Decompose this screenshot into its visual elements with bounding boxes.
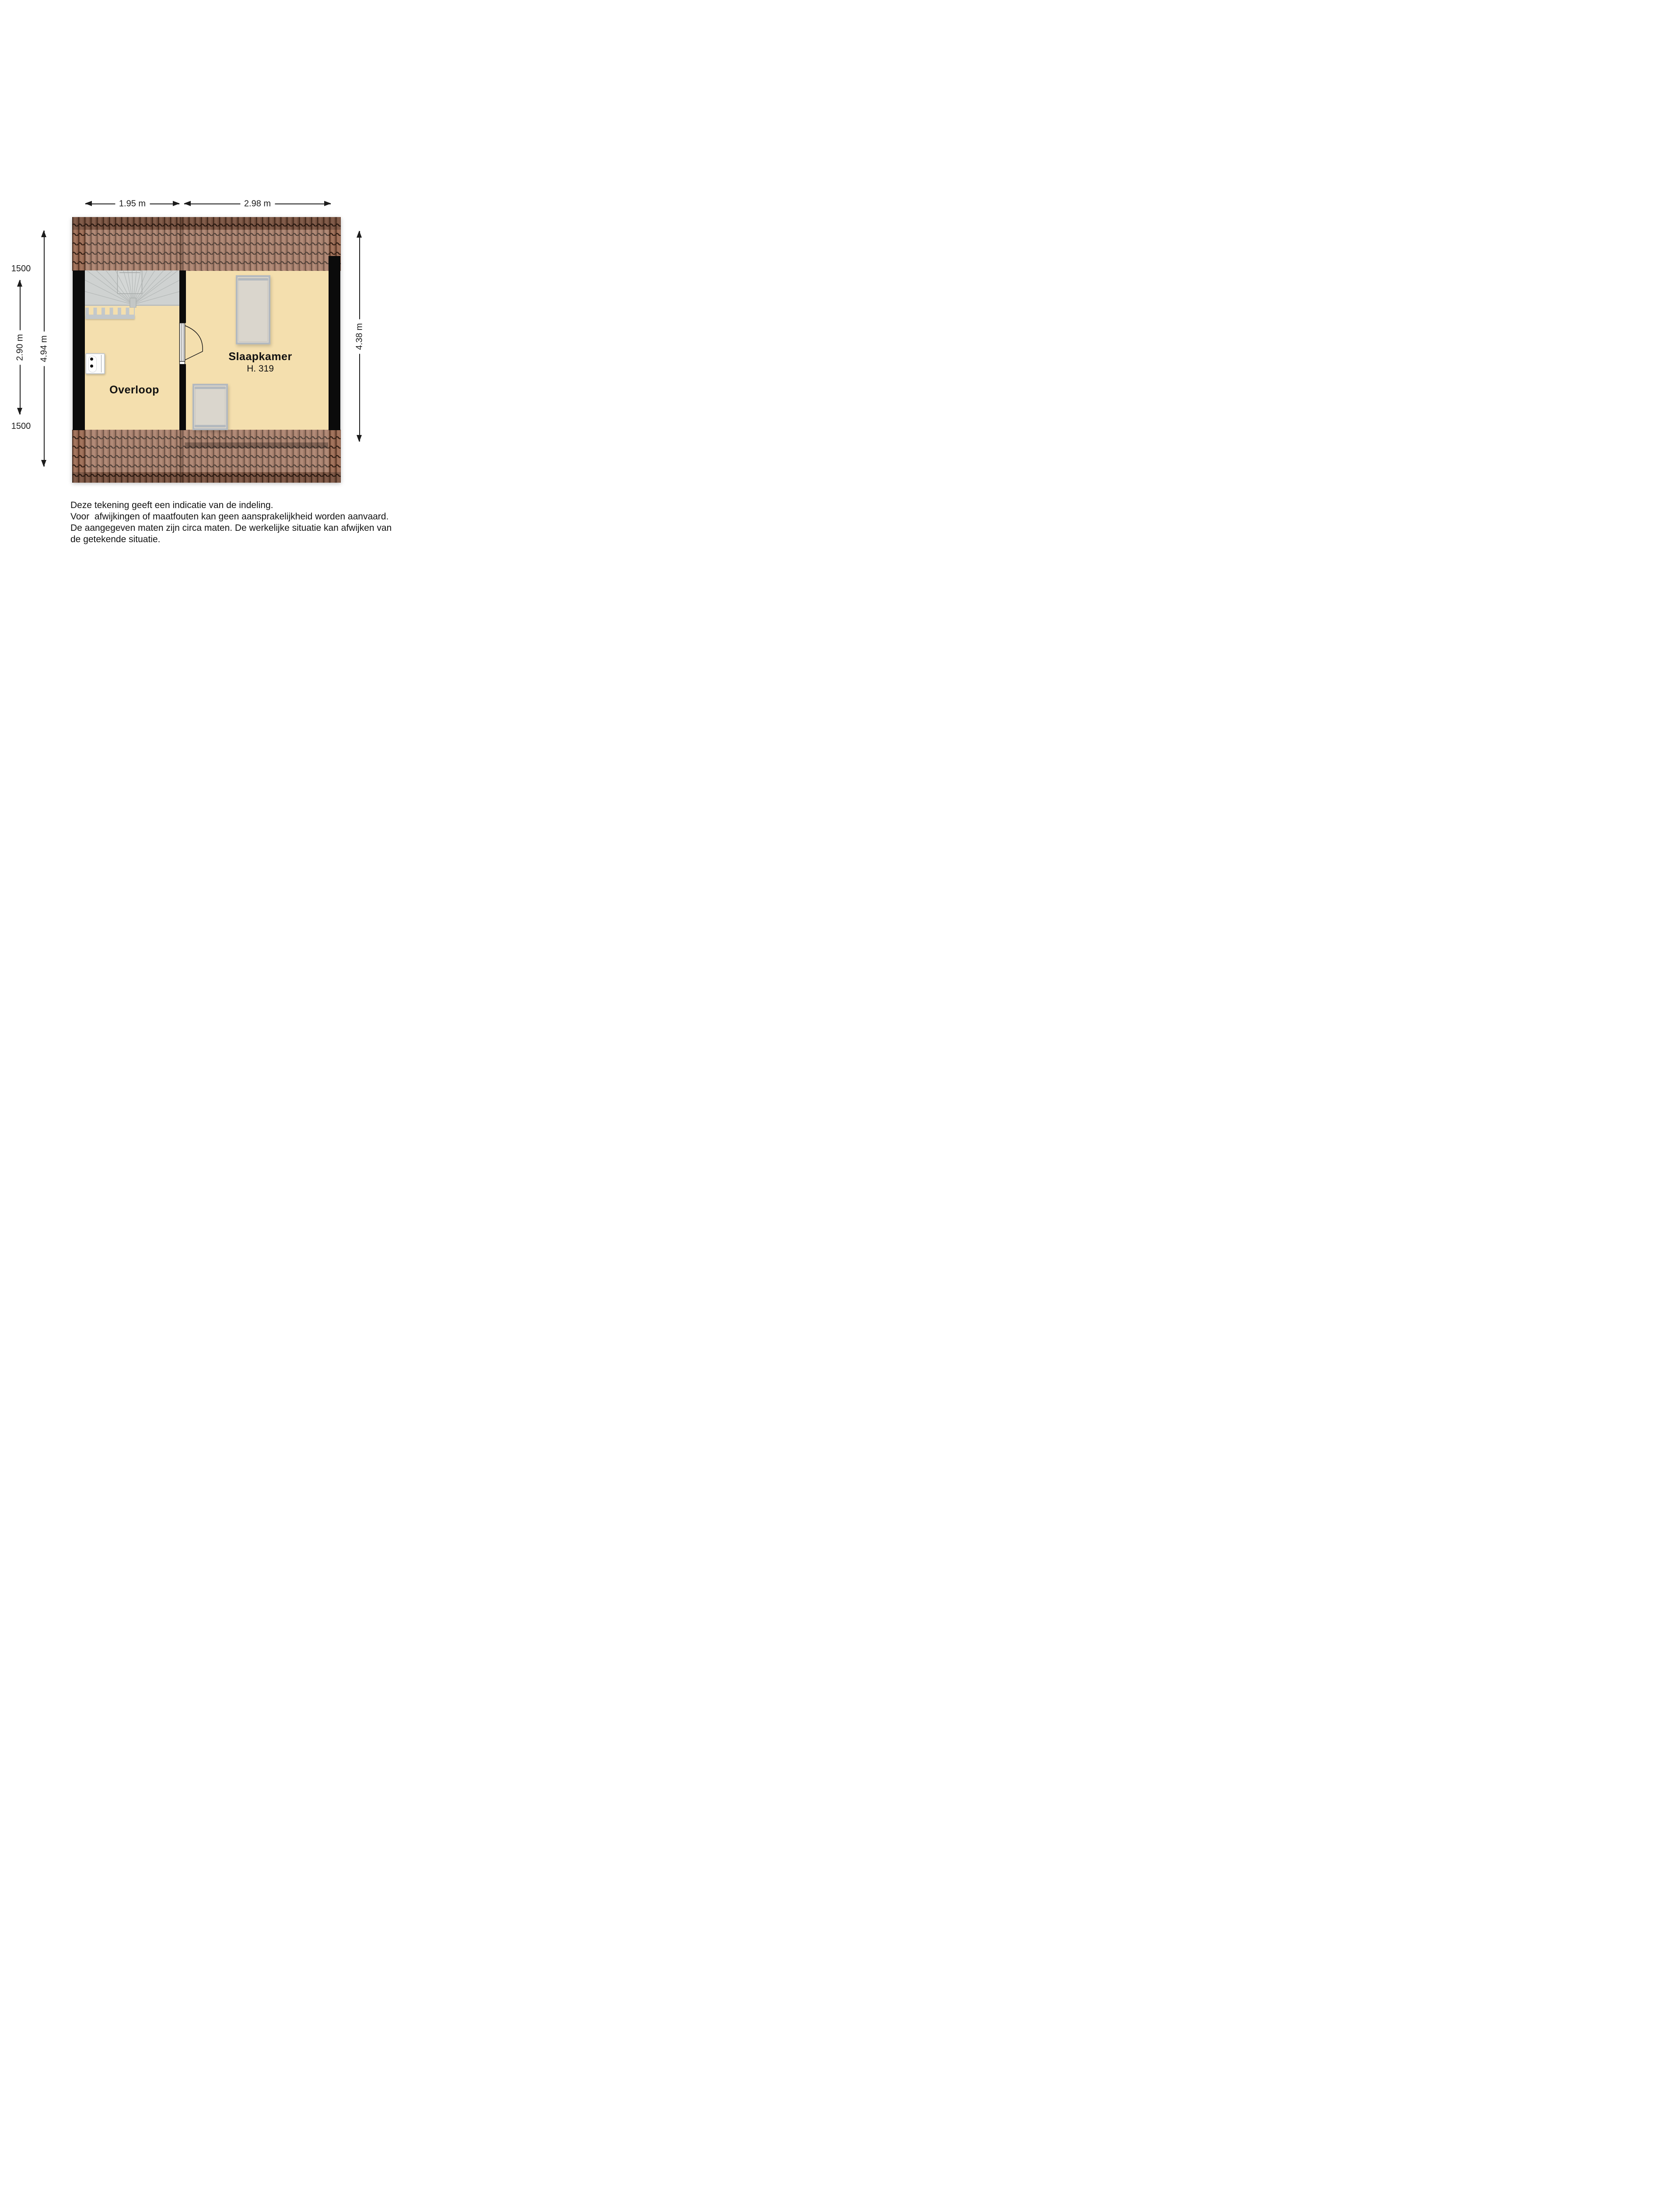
- bottom-roof-band: [72, 430, 341, 483]
- left-wall: [73, 270, 85, 430]
- door-jamb: [180, 361, 185, 365]
- roof-eave-shade: [72, 472, 341, 483]
- dim-label: 2.90 m: [15, 330, 25, 365]
- roof-ledge-shade: [185, 442, 329, 448]
- dim-label: 2.98 m: [240, 199, 275, 209]
- disclaimer-line: De aangegeven maten zijn circa maten. De…: [70, 522, 412, 534]
- arrow-down-icon: [17, 408, 22, 415]
- knee-wall-value-top: 1500: [3, 264, 38, 274]
- disclaimer-line: Deze tekening geeft een indicatie van de…: [70, 500, 412, 511]
- room-name: Slaapkamer: [206, 351, 315, 363]
- room-label-slaapkamer: Slaapkamer H. 319: [206, 351, 315, 374]
- roof-window-bar: [195, 387, 226, 389]
- stairs: [85, 270, 180, 308]
- roof-ridge-shade: [72, 217, 341, 230]
- knee-wall-value-bottom: 1500: [3, 421, 38, 431]
- divider-seam: [180, 430, 182, 483]
- dim-label: 1.95 m: [115, 199, 150, 209]
- arrow-left-icon: [184, 201, 191, 206]
- boiler-knob-icon: [90, 365, 93, 368]
- newel-post: [130, 298, 136, 308]
- arrow-up-icon: [17, 280, 22, 287]
- room-ceiling-height: H. 319: [206, 364, 315, 374]
- arrow-right-icon: [324, 201, 331, 206]
- disclaimer-text: Deze tekening geeft een indicatie van de…: [70, 500, 412, 545]
- top-roof-band: [72, 217, 341, 271]
- inner-roof-highlight: [85, 430, 329, 472]
- roof-window-bottom: [192, 384, 228, 430]
- disclaimer-line: de getekende situatie.: [70, 534, 412, 545]
- room-label-overloop: Overloop: [101, 384, 167, 396]
- inner-roof-highlight: [85, 230, 329, 271]
- floorplan-canvas: 1.95 m 2.98 m 1500 2.90 m 1500 4.94 m 4.…: [0, 0, 420, 747]
- divider-seam: [180, 217, 182, 271]
- dim-label: 4.38 m: [355, 319, 365, 354]
- door-swing-arc: [183, 326, 203, 361]
- arrow-up-icon: [357, 231, 362, 238]
- roof-window-bar: [195, 425, 226, 427]
- divider-wall-lower: [179, 364, 186, 430]
- roof-window-bar: [238, 278, 268, 281]
- arrow-down-icon: [357, 435, 362, 442]
- arrow-up-icon: [41, 230, 46, 237]
- boiler-door-seam: [101, 355, 102, 372]
- door: [177, 322, 208, 365]
- door-leaf: [180, 323, 185, 361]
- boiler-unit: [85, 353, 105, 374]
- roof-window-top: [236, 275, 270, 344]
- room-name: Overloop: [101, 384, 167, 396]
- roof-window-pane: [238, 278, 268, 342]
- disclaimer-line: Voor afwijkingen of maatfouten kan geen …: [70, 511, 412, 522]
- dim-label: 4.94 m: [39, 331, 49, 366]
- divider-wall-upper: [179, 270, 186, 323]
- roof-window-pane: [195, 386, 225, 428]
- stair-railing: [85, 308, 135, 319]
- right-wall: [329, 256, 340, 430]
- arrow-right-icon: [173, 201, 180, 206]
- arrow-down-icon: [41, 460, 46, 467]
- arrow-left-icon: [85, 201, 92, 206]
- boiler-knob-icon: [90, 358, 93, 361]
